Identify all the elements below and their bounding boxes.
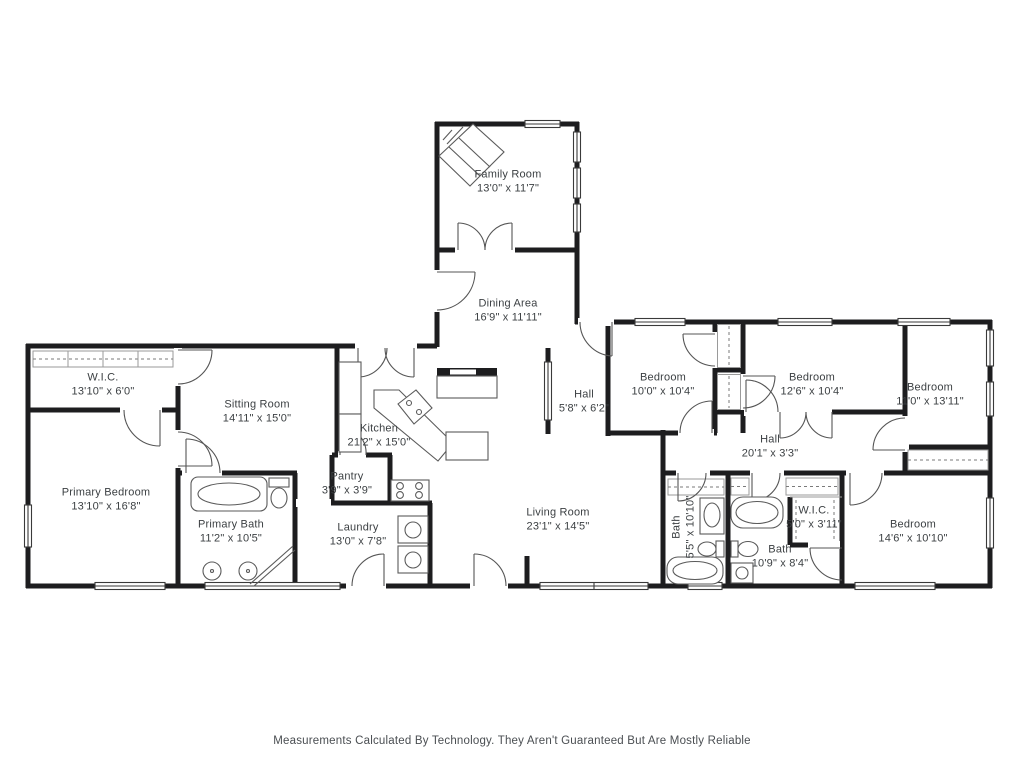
fireplace (439, 124, 504, 186)
windows-layer (25, 121, 994, 590)
walls-layer (26, 122, 992, 588)
footer-disclaimer: Measurements Calculated By Technology. T… (0, 735, 1024, 747)
floorplan-drawing (0, 0, 1024, 768)
bath2-fixtures (731, 497, 783, 583)
range (391, 480, 429, 501)
floorplan-page: Family Room13'0" x 11'7"Dining Area16'9"… (0, 0, 1024, 768)
kitchen-counter (339, 362, 361, 414)
primary-bath-fixtures (191, 477, 295, 586)
bath1-fixtures (667, 498, 724, 584)
fixtures-layer (191, 124, 783, 586)
